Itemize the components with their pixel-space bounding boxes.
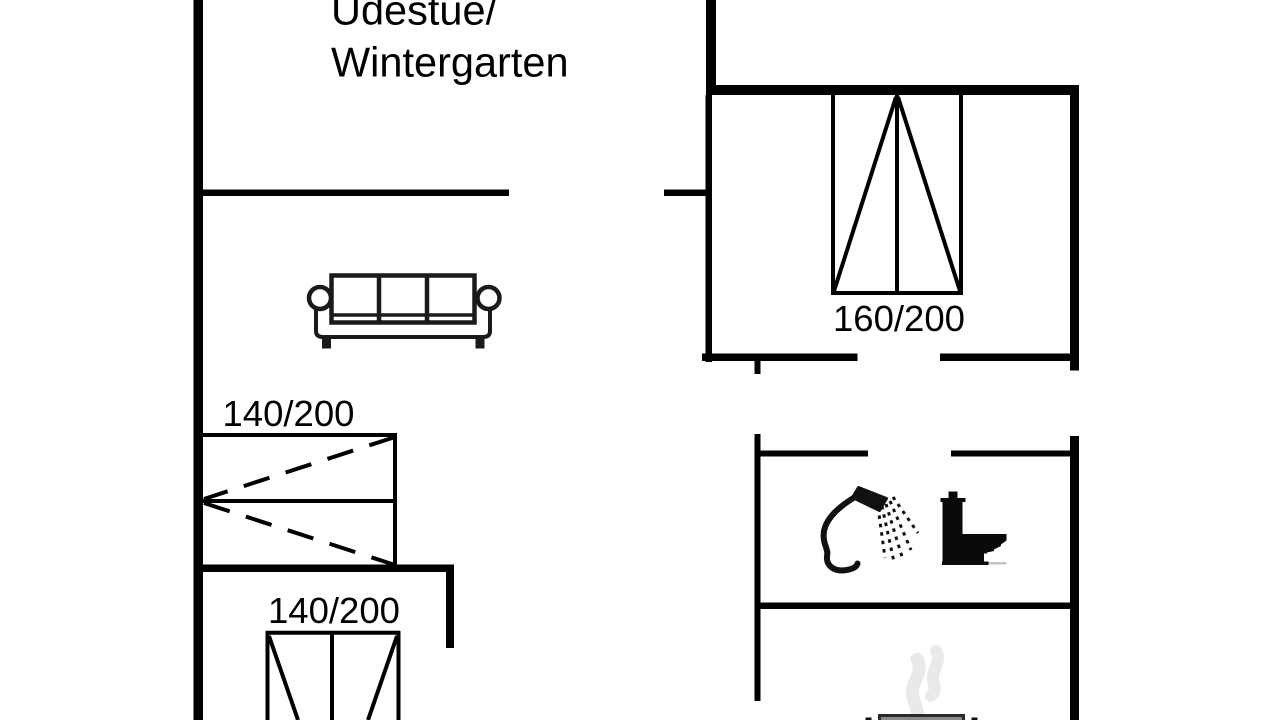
- svg-text:140/200: 140/200: [268, 590, 400, 631]
- svg-text:Wintergarten: Wintergarten: [331, 39, 569, 86]
- svg-text:140/200: 140/200: [223, 393, 355, 434]
- svg-text:Udestue/: Udestue/: [331, 0, 498, 34]
- svg-text:160/200: 160/200: [833, 298, 965, 339]
